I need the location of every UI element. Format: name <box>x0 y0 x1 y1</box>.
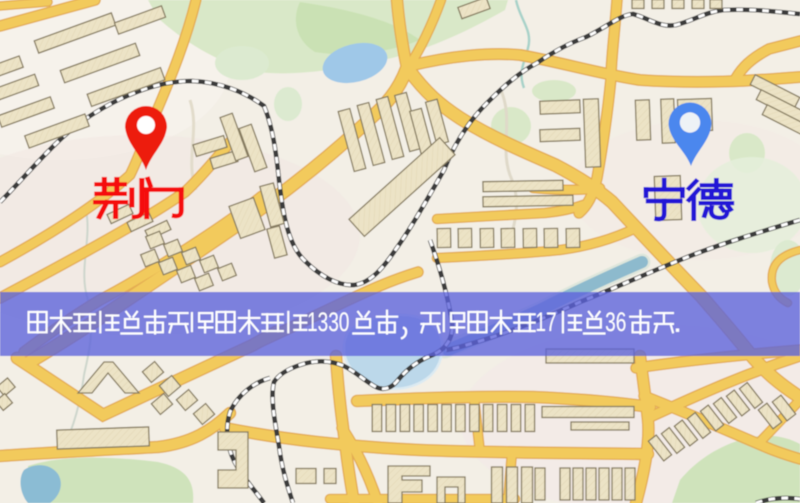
svg-text:36: 36 <box>605 307 626 337</box>
svg-text:17: 17 <box>535 307 556 337</box>
svg-text:1330: 1330 <box>307 307 349 337</box>
